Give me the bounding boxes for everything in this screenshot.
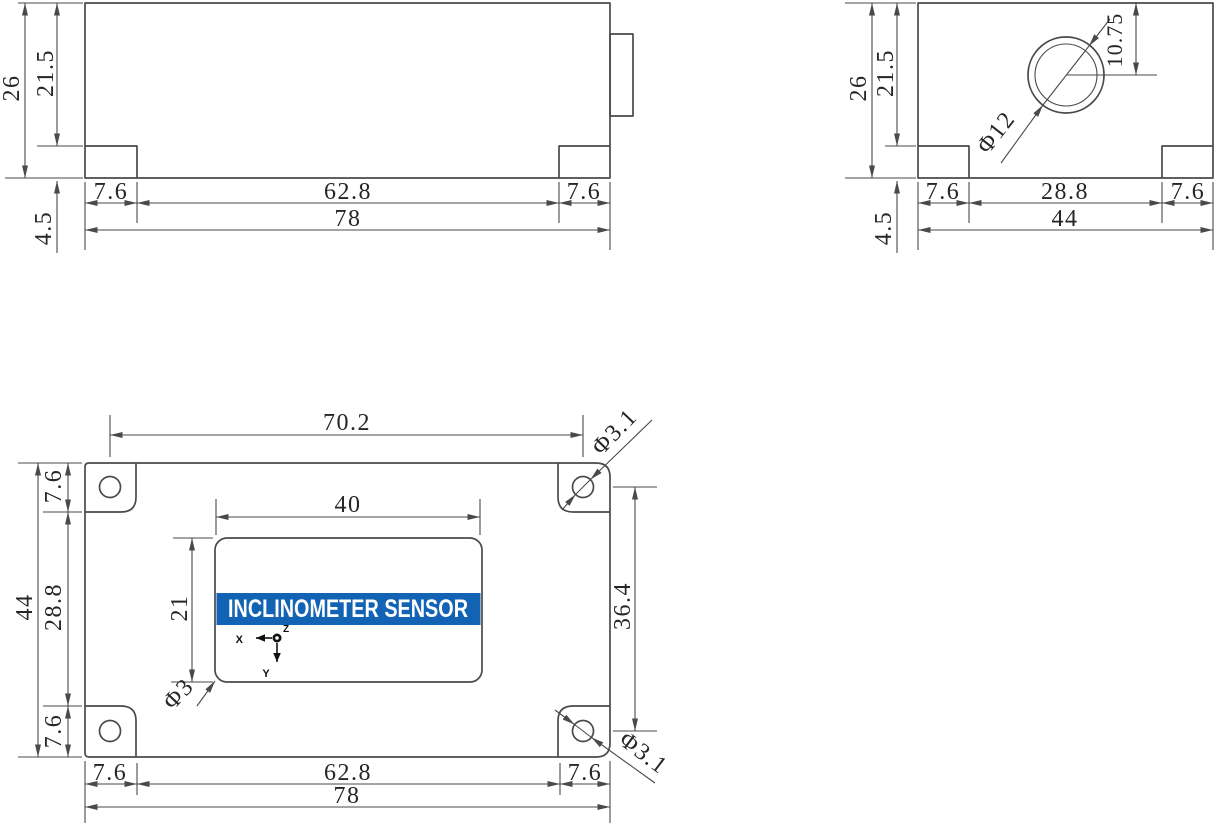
side-right-flange-step <box>1162 146 1213 178</box>
front-dim-right-step: 7.6 <box>567 179 602 205</box>
technical-drawing-page: 26 21.5 4.5 7.6 62.8 7.6 78 Φ12 10.75 <box>0 0 1221 830</box>
side-dim-left-step: 7.6 <box>926 179 961 205</box>
axis-x-label: X <box>236 634 244 646</box>
front-left-flange-step <box>85 146 137 178</box>
top-dim-corner-offset-bottom: 7.6 <box>41 714 67 749</box>
tab-top-right <box>558 463 610 512</box>
side-body-outline <box>918 3 1213 178</box>
mounting-hole-bottom-left <box>100 721 121 742</box>
top-dim-hole-dia-tr: Φ3.1 <box>587 404 643 461</box>
top-dim-corner-offset-top: 7.6 <box>41 469 67 504</box>
side-dim-connector-dia: Φ12 <box>972 107 1021 159</box>
top-dim-hole-pitch-x: 70.2 <box>323 410 371 436</box>
axis-marker: X Y Z <box>236 624 289 680</box>
mounting-hole-top-left <box>100 477 121 498</box>
side-dim-right-step: 7.6 <box>1171 179 1206 205</box>
top-dim-mid-height: 28.8 <box>41 583 67 631</box>
front-body-outline <box>85 3 610 178</box>
axis-z-label: Z <box>283 624 289 635</box>
top-dim-hole-pitch-y: 36.4 <box>610 582 636 630</box>
front-dim-left-step: 7.6 <box>94 179 129 205</box>
top-dim-hole-dia-br: Φ3.1 <box>614 727 672 780</box>
front-dim-total-width: 78 <box>335 206 362 232</box>
front-connector-tab <box>610 34 633 116</box>
side-dim-total-width: 44 <box>1052 206 1079 232</box>
top-dim-label-height: 21 <box>167 595 193 622</box>
side-left-flange-step <box>918 146 969 178</box>
side-dim-connector-depth: 10.75 <box>1102 13 1127 68</box>
front-view: 26 21.5 4.5 7.6 62.8 7.6 78 <box>0 3 633 253</box>
axis-y-label: Y <box>262 668 270 680</box>
side-view: Φ12 10.75 26 21.5 4.5 7.6 28.8 7.6 44 <box>845 3 1213 253</box>
top-dim-total-width: 78 <box>334 783 361 809</box>
technical-drawing: 26 21.5 4.5 7.6 62.8 7.6 78 Φ12 10.75 <box>0 0 1221 830</box>
top-dim-right-step: 7.6 <box>568 760 603 786</box>
front-right-flange-step <box>559 146 610 178</box>
top-dim-left-step: 7.6 <box>93 760 128 786</box>
tab-bottom-left <box>85 706 136 757</box>
product-label: INCLINOMETER SENSOR <box>228 595 468 623</box>
front-dim-total-height: 26 <box>0 75 25 102</box>
top-dim-total-height: 44 <box>12 594 38 621</box>
front-dim-mid-width: 62.8 <box>324 179 372 205</box>
top-dim-label-width: 40 <box>335 492 362 518</box>
side-dim-upper-height: 21.5 <box>873 49 899 97</box>
tab-top-left <box>85 463 136 512</box>
side-dim-flange-height: 4.5 <box>871 211 897 246</box>
top-dim-label-corner-dia: Φ3 <box>158 673 199 715</box>
side-dim-total-height: 26 <box>846 75 872 102</box>
front-dim-upper-height: 21.5 <box>33 49 59 97</box>
side-dim-mid-width: 28.8 <box>1041 179 1089 205</box>
front-dim-flange-height: 4.5 <box>31 211 57 246</box>
top-view: INCLINOMETER SENSOR X Y Z 70.2 40 21 <box>12 404 672 823</box>
